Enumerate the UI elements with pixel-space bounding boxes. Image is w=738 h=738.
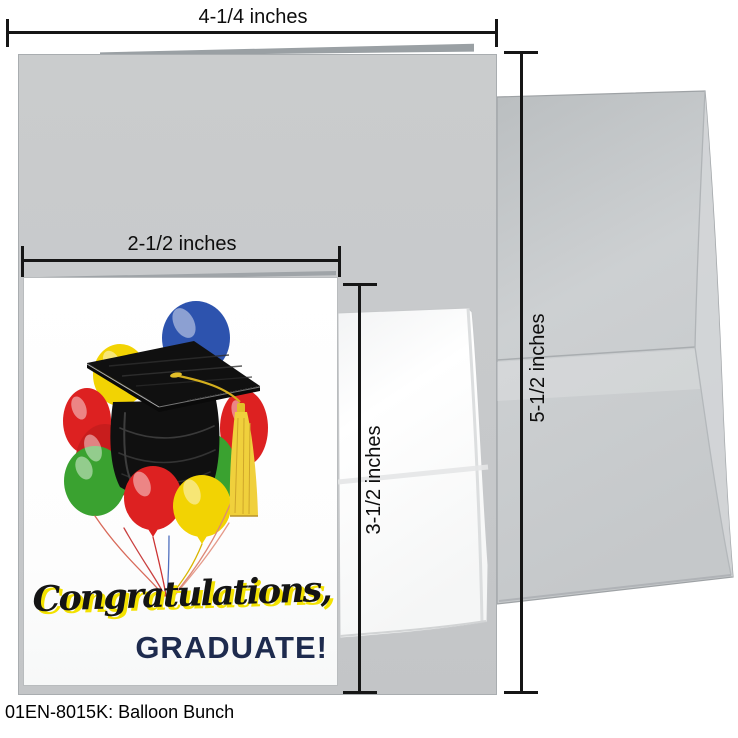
dim-tick-card-height-top xyxy=(504,51,538,54)
dim-tick-card-width-right xyxy=(495,19,498,47)
dim-label-front-width: 2-1/2 inches xyxy=(23,233,341,256)
dim-label-front-height: 3-1/2 inches xyxy=(363,424,385,536)
dim-label-card-width: 4-1/4 inches xyxy=(8,6,498,29)
insert-sheet xyxy=(330,300,500,645)
balloon-knot-red xyxy=(148,529,158,537)
dim-tick-front-width-right xyxy=(338,246,341,277)
dim-line-card-width xyxy=(8,31,498,34)
card-front-panel: Congratulations, GRADUATE! xyxy=(23,277,338,686)
envelope xyxy=(460,85,738,615)
dim-line-front-height xyxy=(358,284,361,693)
dim-line-card-height xyxy=(520,52,523,693)
dim-tick-card-height-bottom xyxy=(504,691,538,694)
dim-tick-card-width-left xyxy=(6,19,9,47)
balloon-red-bottom xyxy=(124,466,182,530)
product-diagram: Congratulations, GRADUATE! 4-1/4 inches … xyxy=(0,0,738,738)
greeting-caps-text: GRADUATE! xyxy=(135,630,328,666)
balloon-yellow-bottom xyxy=(173,475,231,537)
balloon-knot-yellow xyxy=(197,536,207,544)
dim-label-card-height: 5-1/2 inches xyxy=(527,312,549,424)
tassel-knot xyxy=(237,403,245,413)
dim-line-front-width xyxy=(23,259,341,262)
dim-tick-front-height-top xyxy=(343,283,377,286)
balloon-artwork xyxy=(24,278,337,685)
dim-tick-front-height-bottom xyxy=(343,691,377,694)
dim-tick-front-width-left xyxy=(21,246,24,277)
product-caption: 01EN-8015K: Balloon Bunch xyxy=(5,702,234,723)
